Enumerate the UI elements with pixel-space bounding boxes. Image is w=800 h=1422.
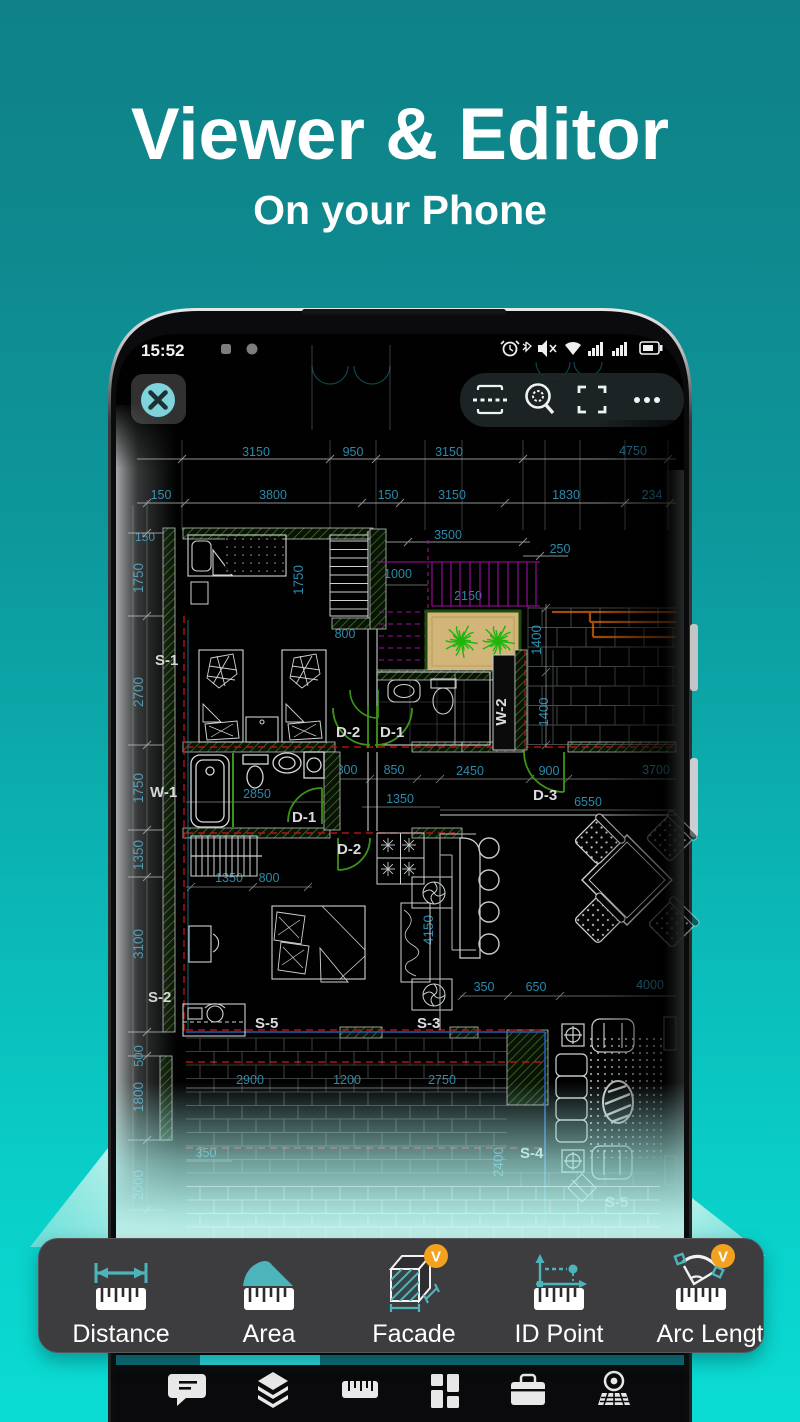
svg-text:D-3: D-3 bbox=[533, 787, 557, 804]
svg-text:2450: 2450 bbox=[456, 764, 484, 778]
svg-text:1000: 1000 bbox=[384, 567, 412, 581]
svg-text:3150: 3150 bbox=[438, 488, 466, 502]
svg-text:4150: 4150 bbox=[421, 915, 436, 945]
svg-text:1400: 1400 bbox=[536, 698, 551, 727]
svg-text:D-2: D-2 bbox=[337, 841, 361, 858]
svg-text:D-1: D-1 bbox=[380, 724, 404, 741]
svg-text:3150: 3150 bbox=[242, 445, 270, 459]
svg-text:2850: 2850 bbox=[243, 787, 271, 801]
svg-text:D-2: D-2 bbox=[336, 724, 360, 741]
svg-text:850: 850 bbox=[384, 763, 405, 777]
svg-text:V: V bbox=[718, 1249, 728, 1266]
svg-text:3150: 3150 bbox=[435, 445, 463, 459]
svg-text:W-2: W-2 bbox=[493, 698, 510, 725]
svg-text:800: 800 bbox=[259, 871, 280, 885]
svg-text:2150: 2150 bbox=[454, 589, 482, 603]
svg-text:350: 350 bbox=[474, 980, 495, 994]
svg-text:3800: 3800 bbox=[259, 488, 287, 502]
svg-text:S-3: S-3 bbox=[417, 1015, 440, 1032]
svg-text:3500: 3500 bbox=[434, 528, 462, 542]
svg-text:1830: 1830 bbox=[552, 488, 580, 502]
svg-text:S-5: S-5 bbox=[255, 1015, 278, 1032]
svg-text:650: 650 bbox=[526, 980, 547, 994]
svg-text:1350: 1350 bbox=[386, 792, 414, 806]
svg-text:150: 150 bbox=[378, 488, 399, 502]
svg-text:V: V bbox=[431, 1249, 441, 1266]
svg-text:1350: 1350 bbox=[215, 871, 243, 885]
svg-text:900: 900 bbox=[539, 764, 560, 778]
svg-text:250: 250 bbox=[550, 542, 571, 556]
svg-text:950: 950 bbox=[343, 445, 364, 459]
svg-text:D-1: D-1 bbox=[292, 809, 316, 826]
svg-text:1750: 1750 bbox=[291, 565, 306, 595]
svg-text:15:52: 15:52 bbox=[141, 341, 184, 360]
